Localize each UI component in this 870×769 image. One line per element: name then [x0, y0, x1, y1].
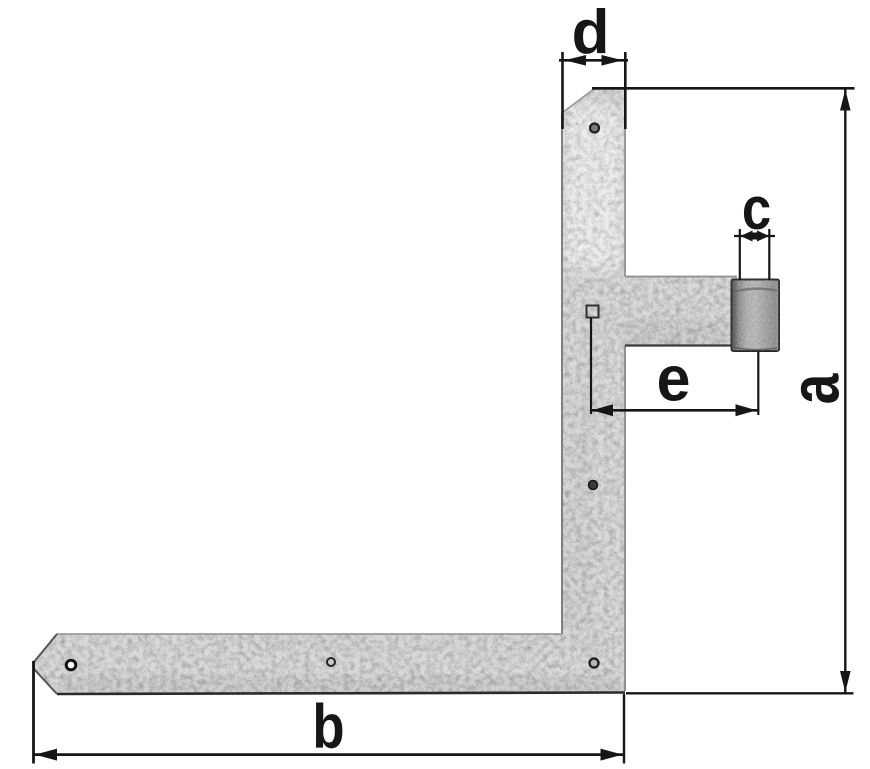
svg-text:d: d [572, 0, 610, 67]
svg-text:c: c [742, 175, 771, 242]
svg-text:e: e [657, 343, 691, 415]
svg-text:a: a [776, 373, 854, 405]
svg-text:b: b [312, 693, 344, 762]
